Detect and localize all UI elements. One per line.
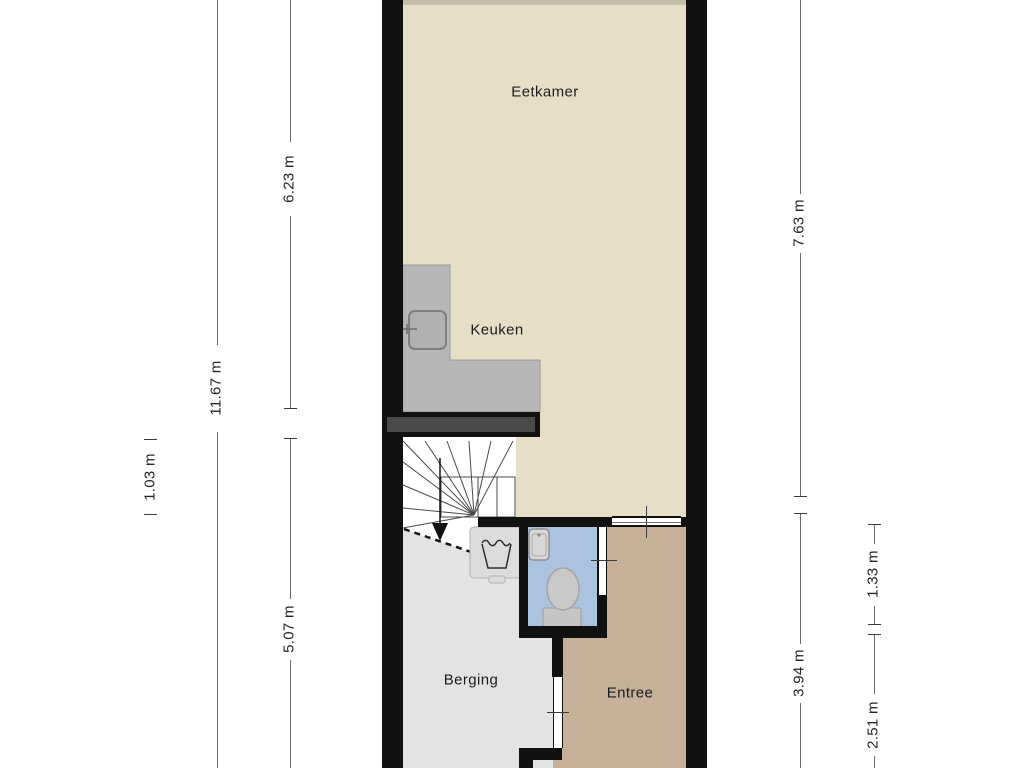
dimension-label-1-03: 1.03 m [142,453,159,501]
dimension-label-6-23: 6.23 m [281,155,298,203]
wall-outer-left [382,0,403,768]
dimension-label-5-07: 5.07 m [281,605,298,653]
dimension-label-2-51: 2.51 m [865,701,882,749]
wall-hall-stub [552,638,563,677]
room-label-entree: Entree [607,685,654,702]
window-tick [646,506,647,538]
dimension-label-11-67: 11.67 m [208,360,225,415]
wall-toilet-bottom [519,626,607,638]
room-eetkamer-floor [403,0,686,517]
dimension-label-7-63: 7.63 m [791,199,808,247]
floor-plan-canvas: Eetkamer Keuken Berging Entree 6.23 m 11… [0,0,1024,768]
room-toilet-floor [528,527,597,626]
room-label-berging: Berging [444,672,499,689]
door-opening-icon-toilet [598,527,607,595]
wall-bottom-corner-v [519,748,533,768]
door-toilet-tick [591,560,617,561]
wall-outer-right [686,0,707,768]
door-berging-tick [547,712,569,713]
room-label-eetkamer: Eetkamer [511,84,578,101]
top-edge-shadow [403,0,686,5]
dimension-label-3-94: 3.94 m [791,649,808,697]
wall-kitchen-fill [387,417,535,432]
wall-kitchen [382,412,540,437]
dimension-label-1-33: 1.33 m [865,550,882,598]
room-label-keuken: Keuken [470,322,523,339]
wall-toilet-left [519,517,528,638]
